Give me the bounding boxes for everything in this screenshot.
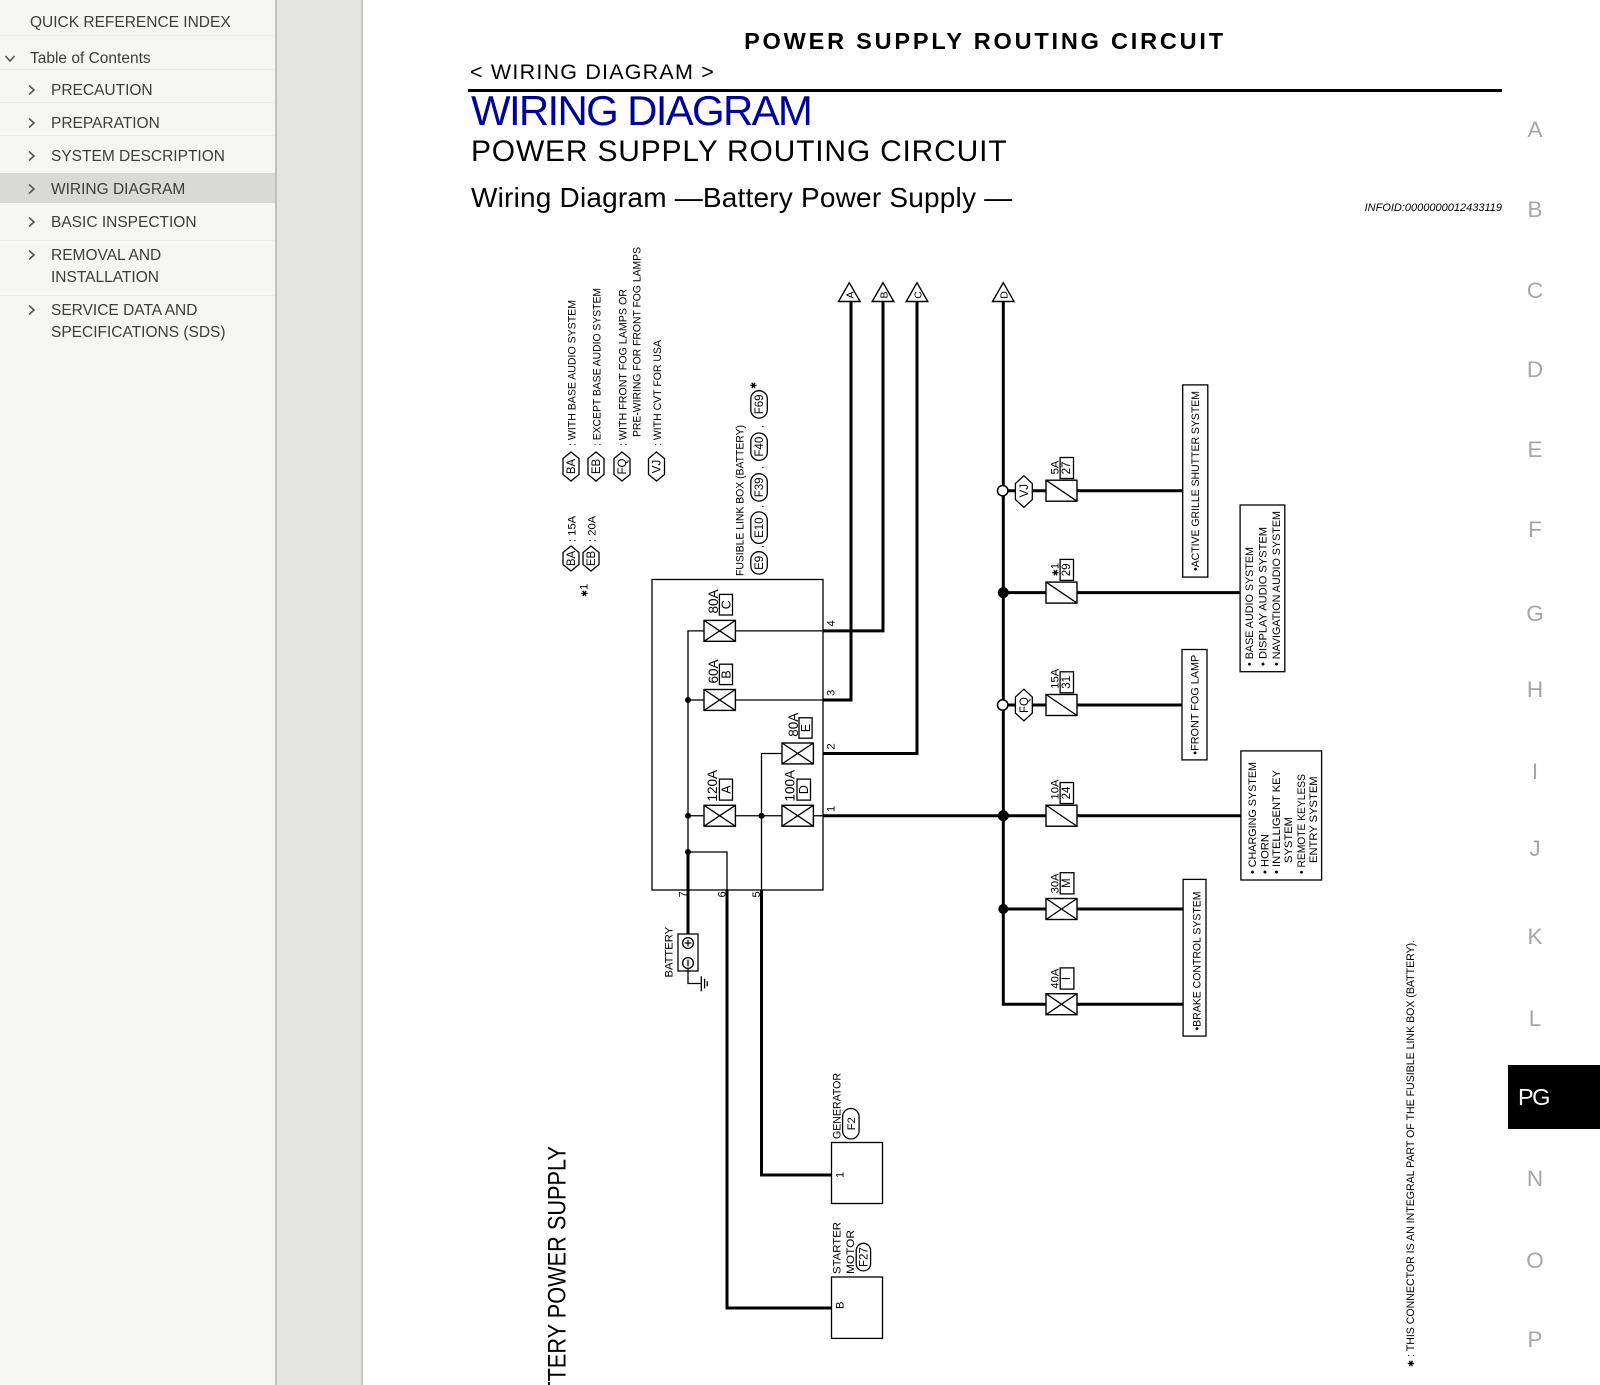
- svg-text:1: 1: [826, 806, 838, 812]
- svg-text:: WITH BASE AUDIO SYSTEM: : WITH BASE AUDIO SYSTEM: [567, 300, 579, 446]
- svg-text:✱ : THIS CONNECTOR IS AN INTEG: ✱ : THIS CONNECTOR IS AN INTEGRAL PART O…: [1405, 940, 1417, 1367]
- svg-text:F69: F69: [754, 394, 766, 414]
- svg-text:E9: E9: [754, 556, 766, 570]
- svg-text:✱1: ✱1: [579, 584, 591, 597]
- svg-text:VJ: VJ: [1019, 484, 1031, 497]
- svg-text:,: ,: [754, 425, 766, 428]
- svg-text:27: 27: [1061, 462, 1073, 475]
- svg-text:•FRONT FOG LAMP: •FRONT FOG LAMP: [1189, 655, 1201, 755]
- svg-text:C: C: [912, 291, 924, 299]
- svg-text:D: D: [999, 291, 1011, 299]
- svg-text:• REMOTE KEYLESS: • REMOTE KEYLESS: [1296, 774, 1308, 874]
- svg-text:M: M: [1061, 878, 1073, 888]
- svg-text:2: 2: [826, 743, 838, 749]
- svg-text:F2: F2: [846, 1117, 858, 1130]
- svg-text:SYSTEM: SYSTEM: [1283, 817, 1295, 863]
- svg-text:• INTELLIGENT KEY: • INTELLIGENT KEY: [1271, 769, 1283, 874]
- svg-text:F39: F39: [754, 477, 766, 497]
- svg-text:PRE-WIRING FOR FRONT FOG LAMPS: PRE-WIRING FOR FRONT FOG LAMPS: [632, 247, 644, 437]
- svg-text:• NAVIGATION AUDIO SYSTEM: • NAVIGATION AUDIO SYSTEM: [1271, 511, 1283, 666]
- svg-text:•ACTIVE GRILLE SHUTTER SYSTEM: •ACTIVE GRILLE SHUTTER SYSTEM: [1190, 391, 1202, 571]
- svg-text:29: 29: [1061, 564, 1073, 577]
- svg-text:STARTER: STARTER: [832, 1222, 844, 1274]
- svg-text:B: B: [835, 1302, 847, 1309]
- svg-text:100A: 100A: [783, 770, 798, 802]
- svg-text:24: 24: [1061, 786, 1073, 799]
- svg-text:GENERATOR: GENERATOR: [832, 1073, 844, 1139]
- svg-text:,: ,: [754, 545, 766, 548]
- svg-text:E10: E10: [754, 517, 766, 537]
- svg-text:: WITH CVT FOR USA: : WITH CVT FOR USA: [652, 340, 664, 446]
- svg-text:✱: ✱: [749, 382, 759, 389]
- svg-text:BATTERY POWER SUPPLY: BATTERY POWER SUPPLY: [544, 1146, 572, 1385]
- svg-text:BATTERY: BATTERY: [664, 926, 676, 977]
- svg-text:FQ: FQ: [617, 458, 629, 474]
- svg-text:F27: F27: [858, 1247, 870, 1267]
- svg-text:BA: BA: [566, 551, 578, 567]
- svg-text:A: A: [719, 785, 733, 794]
- svg-text:I: I: [1061, 977, 1073, 980]
- svg-text:,: ,: [754, 505, 766, 508]
- svg-text:3: 3: [826, 690, 838, 696]
- svg-text:F40: F40: [754, 437, 766, 457]
- svg-text:: EXCEPT BASE AUDIO SYSTEM: : EXCEPT BASE AUDIO SYSTEM: [592, 288, 604, 446]
- svg-text:FUSIBLE LINK BOX (BATTERY): FUSIBLE LINK BOX (BATTERY): [735, 425, 747, 576]
- svg-text:MOTOR: MOTOR: [845, 1230, 857, 1274]
- svg-text:•BRAKE CONTROL SYSTEM: •BRAKE CONTROL SYSTEM: [1192, 892, 1204, 1031]
- svg-text:: 20A: : 20A: [587, 515, 599, 542]
- svg-text:VJ: VJ: [652, 460, 664, 473]
- svg-text:• DISPLAY AUDIO SYSTEM: • DISPLAY AUDIO SYSTEM: [1258, 527, 1270, 666]
- svg-text:,: ,: [754, 466, 766, 469]
- svg-text:120A: 120A: [705, 770, 720, 802]
- svg-text:: 15A: : 15A: [567, 515, 579, 542]
- svg-text:EB: EB: [586, 551, 598, 567]
- svg-text:EB: EB: [591, 459, 603, 475]
- svg-text:• HORN: • HORN: [1259, 834, 1271, 874]
- svg-text:• BASE AUDIO SYSTEM: • BASE AUDIO SYSTEM: [1244, 547, 1256, 666]
- svg-text:: WITH FRONT FOG LAMPS OR: : WITH FRONT FOG LAMPS OR: [618, 289, 630, 446]
- svg-text:D: D: [797, 785, 811, 794]
- svg-text:B: B: [878, 291, 890, 298]
- svg-text:A: A: [845, 291, 857, 298]
- svg-text:ENTRY SYSTEM: ENTRY SYSTEM: [1308, 776, 1320, 863]
- svg-text:C: C: [719, 600, 733, 609]
- svg-text:1: 1: [835, 1172, 847, 1178]
- svg-text:E: E: [799, 724, 813, 732]
- svg-text:31: 31: [1061, 676, 1073, 689]
- svg-text:BA: BA: [566, 459, 578, 475]
- svg-text:• CHARGING SYSTEM: • CHARGING SYSTEM: [1247, 762, 1259, 874]
- svg-text:B: B: [719, 670, 733, 678]
- svg-text:FQ: FQ: [1019, 697, 1031, 713]
- svg-text:4: 4: [826, 620, 838, 626]
